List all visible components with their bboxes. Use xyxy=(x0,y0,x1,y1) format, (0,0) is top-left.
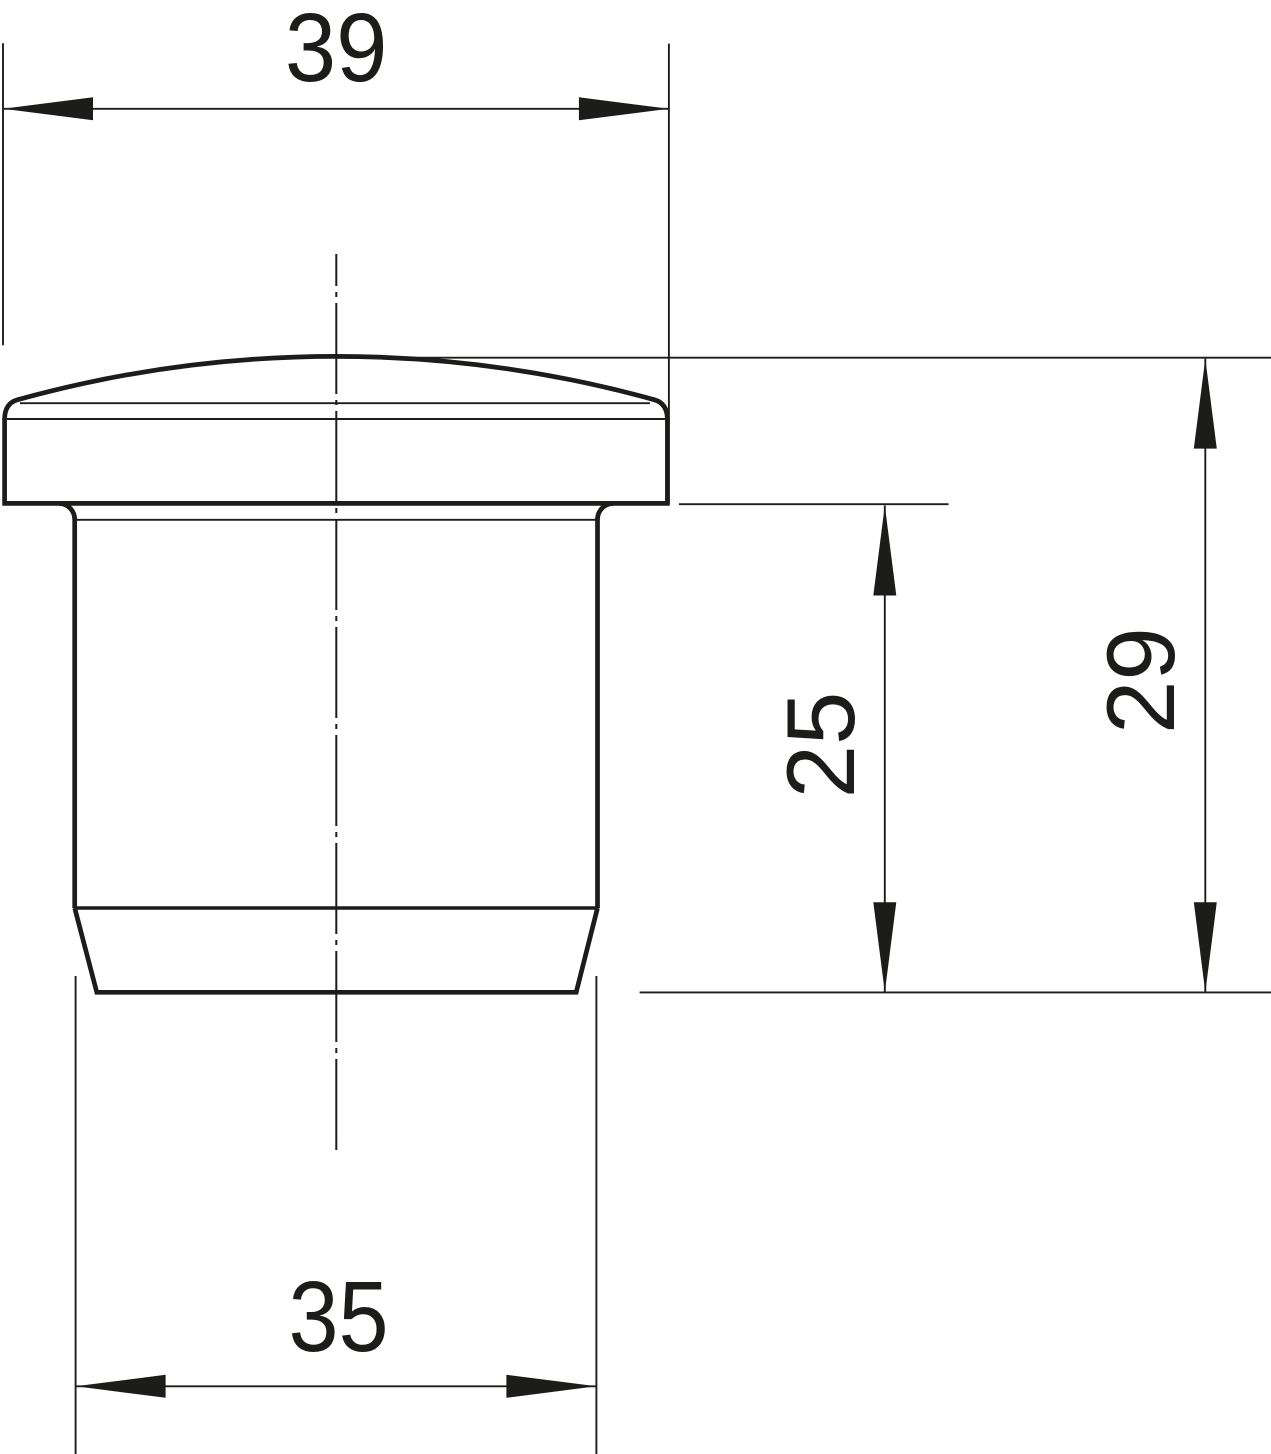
svg-text:25: 25 xyxy=(767,692,875,799)
svg-text:39: 39 xyxy=(285,0,387,103)
svg-text:35: 35 xyxy=(288,1262,388,1373)
svg-text:29: 29 xyxy=(1087,627,1195,734)
